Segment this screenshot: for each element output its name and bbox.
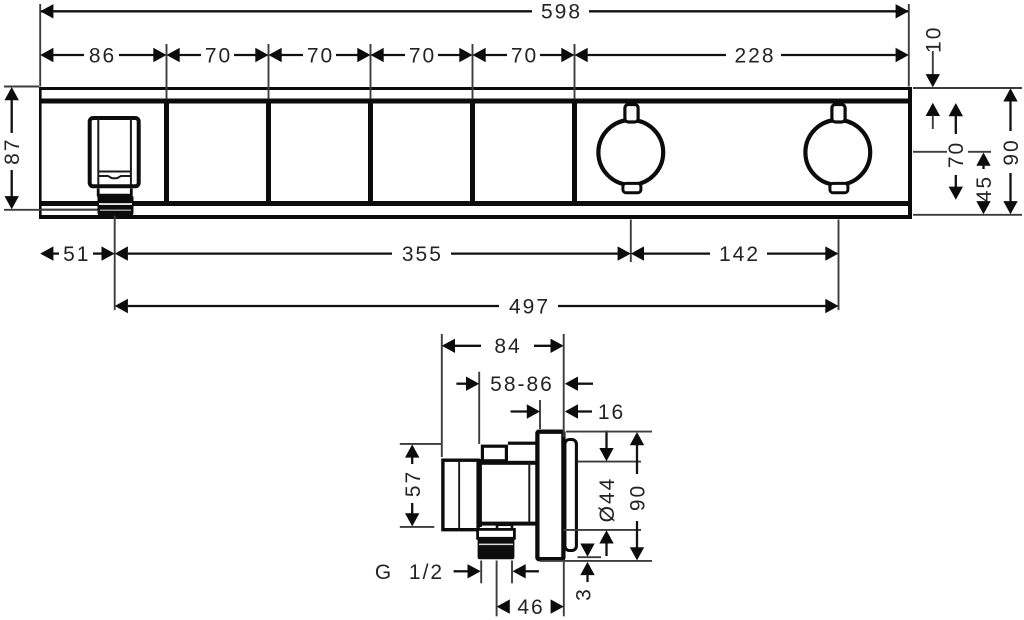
svg-text:57: 57	[402, 470, 425, 497]
svg-text:90: 90	[627, 484, 650, 511]
svg-text:16: 16	[598, 401, 625, 424]
svg-text:86: 86	[89, 44, 116, 67]
svg-text:70: 70	[409, 44, 436, 67]
svg-text:355: 355	[402, 243, 443, 266]
svg-text:142: 142	[719, 243, 760, 266]
svg-text:51: 51	[63, 243, 90, 266]
svg-text:G 1/2: G 1/2	[375, 561, 444, 584]
svg-text:70: 70	[307, 44, 334, 67]
svg-text:598: 598	[541, 1, 582, 24]
svg-text:70: 70	[511, 44, 538, 67]
svg-text:497: 497	[509, 295, 550, 318]
svg-text:Ø44: Ø44	[596, 477, 619, 523]
svg-text:70: 70	[205, 44, 232, 67]
svg-text:87: 87	[1, 138, 24, 165]
svg-text:84: 84	[494, 335, 521, 358]
svg-text:46: 46	[517, 596, 544, 619]
svg-text:3: 3	[573, 587, 596, 601]
svg-text:228: 228	[734, 44, 775, 67]
svg-text:45: 45	[973, 175, 996, 202]
svg-text:90: 90	[1000, 138, 1023, 165]
svg-text:70: 70	[945, 141, 968, 168]
svg-text:58-86: 58-86	[490, 373, 554, 396]
svg-text:10: 10	[923, 26, 946, 53]
